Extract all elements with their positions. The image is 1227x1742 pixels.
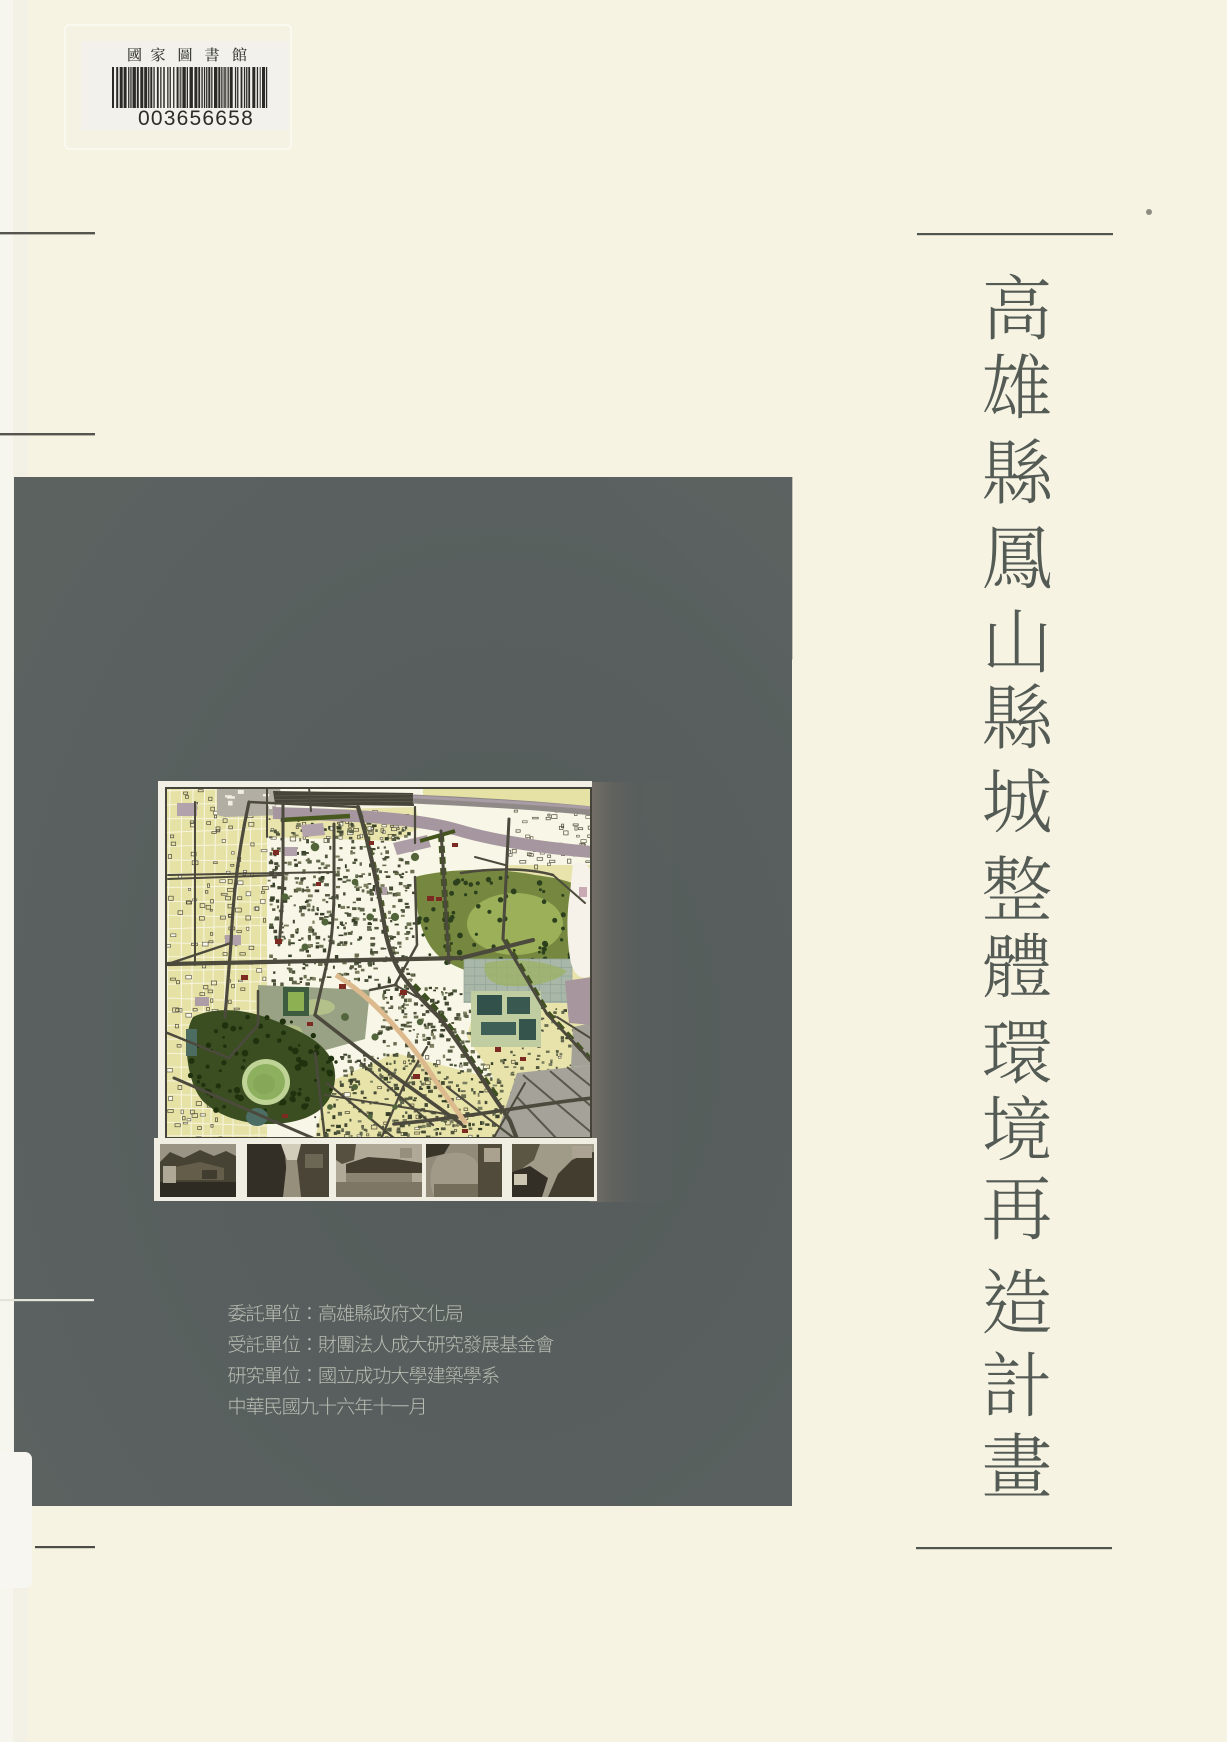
svg-text:003656658: 003656658 [138,107,254,130]
